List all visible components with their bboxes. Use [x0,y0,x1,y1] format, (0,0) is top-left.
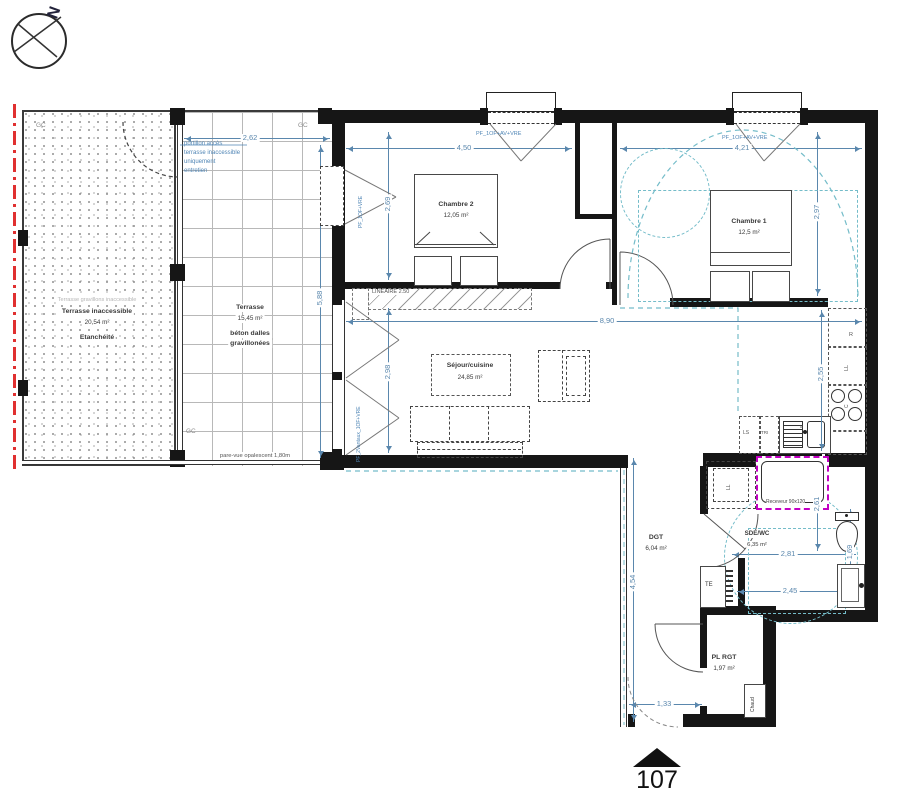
chambre2-name: Chambre 2 [438,201,473,209]
table-chairs [566,356,586,396]
window-ch2-left-label: PF_1OF+VRE [357,196,366,228]
terrasse-name: Terrasse [234,304,266,312]
chaud-label: Chaud [750,697,756,712]
counter-corner-box [828,431,867,455]
window-ch2-top [486,92,556,112]
sink-cabinet-tri-label: TRI [761,430,768,435]
nightstand-ch1-r [752,271,790,302]
pare-vue-note: pare-vue opalescent 1,80m [218,452,292,460]
dim-sdb-w1: 2,81 [779,550,798,558]
chambre2-area: 12,05 m² [444,212,469,220]
window-ch2-top-inner [488,112,554,124]
sink-faucet [803,430,807,434]
terrace-post-2 [170,264,185,281]
portillon-note-line2: terrasse inaccessible [184,149,240,158]
terrasse-inaccessible-area-value: 20,54 m² [83,319,112,327]
window-ch2-post-l [480,108,488,125]
nightstand-ch2-r [460,256,498,286]
terrasse-inaccessible-area [22,110,176,466]
window-sejour-mullion-1 [332,297,342,305]
dim-terrasse-height: 5,88 [316,289,324,308]
window-sejour-mullion-3 [332,449,342,457]
table-divider [562,350,563,400]
accessibility-guide-sejour [620,308,738,415]
wall-duct-left [575,122,580,218]
terrasse-note2: gravillonées [228,340,272,348]
plrgt-name: PL RGT [712,654,737,662]
north-compass-circle [11,13,67,69]
portillon-note-line3: uniquement [184,158,215,167]
shower-label: Receveur 90x120 [766,499,805,505]
dgt-area: 6,04 m² [645,545,666,553]
window-ch1-post-r [800,108,808,125]
lineaire-label: LINEAIRE 2.50 [371,289,410,295]
wall-dgt-left [620,468,627,727]
wall-bath-top-2 [825,453,866,467]
window-ch2-left [320,166,344,226]
bath-basin-faucet [859,583,864,588]
sofa-divider-2 [488,406,489,440]
sde-area: 6,35 m² [746,541,768,549]
dim-ch1-height: 2,97 [813,203,821,222]
dim-kitchen-height: 2,55 [817,365,825,384]
window-ch1-top-label: PF_1OF+AV+VRE [722,134,767,143]
wall-duct-right [612,122,617,218]
dim-dgt-height: 4,54 [629,573,637,592]
te-hinge-stripes [726,570,733,604]
wall-ch2-bottom-nub [606,282,616,289]
gc-label-1: GC [36,122,46,129]
bed-ch2 [414,174,498,248]
wall-duct-cap [575,214,617,219]
terrasse-inaccessible-name: Terrasse inaccessible [60,308,134,316]
sofa-back [417,442,523,458]
terrasse-note1: béton dalles [228,330,272,338]
sejour-name: Séjour/cuisine [447,362,493,370]
sofa-back-line [417,449,521,450]
terrace-post-5 [18,230,28,246]
toilet-button [845,514,848,517]
lineaire-box-small [352,288,369,320]
gc-label-2: GC [298,122,308,129]
sde-name: SDE/WC [744,530,771,538]
washer-label: LL [844,365,850,371]
terrasse-inaccessible-topnote: Terrasse gravillons inaccessible [56,296,139,304]
boundary-red-line [13,104,16,470]
dim-ch2-width: 4,50 [455,144,474,152]
door-ch2 [560,239,610,289]
terrace-bottom-wall [22,460,332,465]
sofa [410,406,530,442]
sink-cabinet-ls-label: LS [743,430,749,436]
dim-terrasse-width: 2,62 [241,134,260,142]
door-plrgt [655,624,703,672]
dgt-name: DGT [649,534,663,542]
wall-plrgt-left-1 [700,606,707,668]
fridge-box [828,308,867,347]
sofa-divider-1 [449,406,450,440]
te-box [700,566,726,608]
fridge-label: R [849,332,853,338]
terrasse-inaccessible-note: Etanchéité [78,334,116,342]
terrasse-area-value: 15,45 m² [236,315,265,323]
dim-sdb-h2: 1,69 [846,543,854,562]
portillon-note-line4: entretien [184,167,207,176]
sink-evier-label: E [799,425,804,428]
plrgt-area: 1,97 m² [713,665,734,673]
terrace-post-6 [18,380,28,396]
bed-ch1 [710,190,792,266]
burner-4 [848,407,862,421]
chambre1-area: 12,5 m² [738,229,759,237]
burner-1 [831,389,845,403]
window-ch1-post-l [726,108,734,125]
portillon-note-line1: portillon accès [184,140,222,149]
dim-sdb-h1: 2,61 [813,495,821,514]
dim-sejour-height: 2,98 [384,363,392,382]
dim-entry-width: 1,33 [655,700,674,708]
floor-plan: N Terrasse gravillons inaccessible Terra… [0,0,906,800]
burner-3 [831,407,845,421]
te-label: TE [705,582,713,588]
bed-ch1-foldline [710,252,790,253]
window-sejour-mullion-2 [332,372,342,380]
chambre1-name: Chambre 1 [731,218,766,226]
nightstand-ch2-l [414,256,452,286]
window-sejour-label: PF_2Vantaux_1OF+VRE [355,406,364,462]
burner-2 [848,389,862,403]
terrace-post-4 [318,108,332,124]
dim-ch1-width: 4,21 [733,144,752,152]
dim-sejour-width: 8,90 [598,317,617,325]
bath-washer-label: LL [726,484,732,490]
cooktop-label: C [844,404,850,408]
window-ch1-top [732,92,802,112]
window-ch2-post-r [554,108,562,125]
terrace-divider-wall [177,112,183,462]
sejour-area: 24,85 m² [458,374,483,382]
bath-basin-inner [841,568,859,602]
apartment-number: 107 [636,766,678,795]
window-ch1-top-inner [734,112,800,124]
entrance-marker [633,748,681,767]
sink-cabinet-tri [760,416,779,454]
terrace-post-1 [170,108,185,125]
wall-corridor [612,219,617,305]
dim-sdb-w2: 2,45 [781,587,800,595]
nightstand-ch1-l [710,271,750,302]
window-ch2-top-label: PF_1OF+AV+VRE [476,130,521,139]
dim-ch2-height: 2,69 [384,195,392,214]
bed-ch2-foldline [414,244,496,245]
gc-label-3: GC [186,428,196,435]
